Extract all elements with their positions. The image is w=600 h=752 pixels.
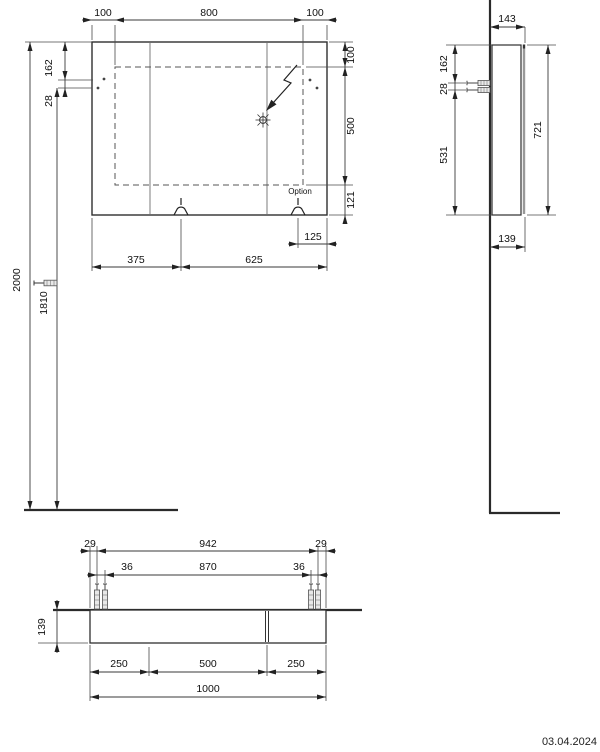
dim-label-side-depth-body: 139 — [498, 233, 516, 245]
dim-label-seg-center: 500 — [199, 658, 217, 670]
dim-label-bottom-right: 625 — [245, 254, 263, 266]
technical-drawing-sheet: Option 100 800 100 162 28 — [0, 0, 600, 752]
dim-label-side-screw-offset: 162 — [438, 55, 450, 73]
front-view: Option 100 800 100 162 28 — [11, 7, 357, 510]
dim-label-outer-span: 942 — [199, 538, 217, 550]
dim-label-total-height: 2000 — [11, 268, 23, 292]
cabinet-top-outline — [90, 610, 326, 643]
dim-label-edge-right: 29 — [315, 538, 327, 550]
electrical-connection-icon — [256, 113, 271, 128]
mounting-hole-dot — [97, 87, 100, 90]
screw-anchor-icon — [94, 584, 99, 609]
cabinet-side-body — [492, 45, 521, 215]
screw-anchor-icon-side-top — [467, 80, 490, 85]
dim-label-side-screw-gap: 28 — [438, 83, 450, 95]
dim-top-depth: 139 — [36, 600, 88, 653]
side-view: 162 28 531 143 721 139 — [438, 0, 560, 513]
dim-label-top-right: 100 — [306, 7, 324, 19]
dim-label-top-center: 800 — [200, 7, 218, 19]
mounting-hole-dot — [309, 79, 312, 82]
screw-anchor-icon-side-bottom — [467, 87, 490, 92]
dim-front-bottom: 125 375 625 — [92, 218, 337, 271]
dim-label-option-offset: 125 — [304, 231, 322, 243]
dim-top-screws: 29 942 29 36 870 36 — [80, 538, 336, 608]
mounting-hole-dot — [316, 87, 319, 90]
option-label: Option — [288, 187, 312, 196]
dim-side-height: 721 — [527, 45, 556, 215]
screw-anchor-icon — [308, 584, 313, 609]
dim-front-left-offsets: 162 28 — [25, 42, 93, 107]
screw-anchor-icon — [315, 584, 320, 609]
dim-label-right-center: 500 — [345, 117, 357, 135]
dim-side-depth-body: 139 — [490, 217, 525, 252]
dim-label-left-gap: 28 — [43, 95, 55, 107]
dim-label-side-height: 721 — [532, 121, 544, 139]
dim-label-left-offset: 162 — [43, 59, 55, 77]
dim-label-side-lower: 531 — [438, 146, 450, 164]
dim-label-mount-height: 1810 — [38, 291, 50, 315]
dim-side-left: 162 28 531 — [438, 45, 492, 215]
dim-label-total-width: 1000 — [196, 683, 220, 695]
dim-label-right-bottom: 121 — [345, 191, 357, 209]
screw-anchor-icons-top — [94, 584, 320, 609]
screw-anchor-icon — [34, 280, 57, 286]
mounting-hole-dot — [103, 78, 106, 81]
dim-label-bottom-left: 375 — [127, 254, 145, 266]
screw-anchor-icon — [102, 584, 107, 609]
top-view: 29 942 29 36 870 36 139 — [36, 538, 362, 701]
dim-label-seg-right: 250 — [287, 658, 305, 670]
drawing-canvas: Option 100 800 100 162 28 — [0, 0, 600, 752]
dim-label-right-top: 100 — [345, 46, 357, 64]
drawing-date: 03.04.2024 — [542, 736, 597, 748]
dim-top-widths: 250 500 250 1000 — [90, 645, 326, 701]
dim-label-side-depth-total: 143 — [498, 13, 516, 25]
dim-label-seg-left: 250 — [110, 658, 128, 670]
dim-label-edge-left: 29 — [84, 538, 96, 550]
dim-side-depth-total: 143 — [490, 13, 525, 43]
dim-label-inner-span: 870 — [199, 561, 217, 573]
dim-label-inner-left: 36 — [121, 561, 133, 573]
dim-label-top-left: 100 — [94, 7, 112, 19]
dim-label-top-depth: 139 — [36, 618, 48, 636]
dim-label-inner-right: 36 — [293, 561, 305, 573]
